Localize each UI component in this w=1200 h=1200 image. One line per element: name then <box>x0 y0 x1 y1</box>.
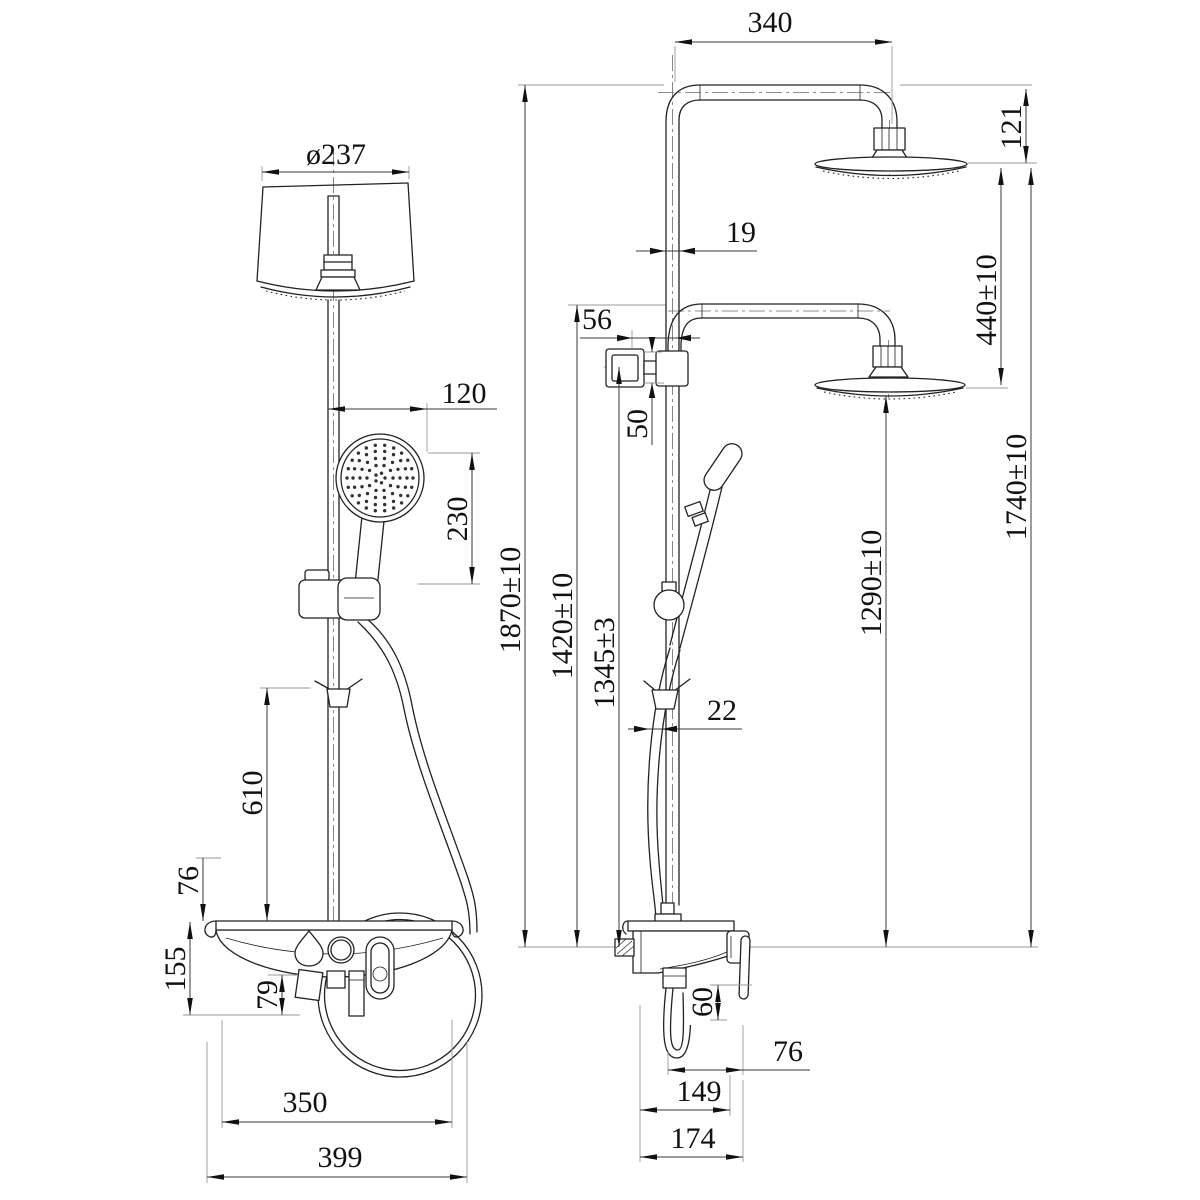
dim-under-shelf-height: 79 <box>251 975 298 1015</box>
dim-shelf-height-label: 155 <box>159 947 192 992</box>
front-shelf <box>205 921 463 1016</box>
dim-diverter-height-label: 50 <box>621 409 654 439</box>
front-hose-outlet <box>295 969 323 1000</box>
front-view <box>205 150 482 1077</box>
side-view <box>518 55 1038 1058</box>
side-lower-arm <box>668 304 965 399</box>
dim-pipe-diameter: 19 <box>636 216 757 254</box>
side-lower-shower-head <box>815 378 965 392</box>
dim-lower-arm-height: 1420±10 <box>546 305 579 947</box>
dim-hook-height-label: 610 <box>236 771 269 816</box>
front-mixer-lever <box>366 937 394 999</box>
side-hook <box>644 679 690 709</box>
dim-hand-shower-length-label: 230 <box>441 497 474 542</box>
dim-arm-reach: 340 <box>675 6 892 124</box>
side-diverter-valve <box>606 349 688 387</box>
dim-shelf-overall-width-label: 399 <box>318 1141 363 1174</box>
dim-body-depth-label: 149 <box>677 1075 722 1108</box>
side-mixer <box>615 903 750 1058</box>
side-holder-knob <box>654 590 684 620</box>
shower-technical-drawing: ø237 120 230 610 76 <box>0 0 1200 1200</box>
dim-head-spacing-label: 440±10 <box>970 254 1003 345</box>
dim-slide-bar-diameter-label: 22 <box>707 694 737 727</box>
dim-lower-head-height: 1290±10 <box>855 396 888 947</box>
side-hand-shower <box>654 440 746 648</box>
dim-diverter-center-height: 1345±3 <box>588 367 621 947</box>
dim-hose-to-lever-label: 76 <box>773 1035 803 1068</box>
front-knob-round <box>328 937 354 963</box>
dim-lever-length-label: 60 <box>686 987 719 1017</box>
dim-shelf-inner-width-label: 350 <box>283 1086 328 1119</box>
side-hose-connector <box>663 968 686 988</box>
dimensions: ø237 120 230 610 76 <box>159 6 1033 1183</box>
dim-hand-shower-length: 230 <box>418 453 480 584</box>
dim-head-drop: 121 <box>995 89 1028 163</box>
dim-upper-head-height: 1740±10 <box>1000 168 1033 947</box>
side-upper-shower-head <box>815 157 967 171</box>
dim-slide-bar-diameter: 22 <box>628 694 742 732</box>
dim-shelf-rim-height-label: 76 <box>172 866 205 896</box>
dim-head-drop-label: 121 <box>995 105 1028 150</box>
dim-lower-arm-height-label: 1420±10 <box>546 573 579 679</box>
front-diverter-pull <box>349 971 364 1016</box>
side-mixer-lever <box>739 936 750 999</box>
dim-overall-height-label: 1870±10 <box>494 547 527 653</box>
dim-shelf-rim-height: 76 <box>172 858 221 921</box>
dim-head-spacing: 440±10 <box>970 168 1003 385</box>
dim-hand-shower-offset-label: 120 <box>442 377 487 410</box>
dim-hook-height: 610 <box>236 688 310 921</box>
dim-overall-depth-label: 174 <box>671 1122 716 1155</box>
front-hose <box>318 618 482 1077</box>
drawing-canvas: ø237 120 230 610 76 <box>0 0 1200 1200</box>
dim-lower-head-height-label: 1290±10 <box>855 530 888 636</box>
dim-pipe-diameter-label: 19 <box>726 216 756 249</box>
dim-arm-reach-label: 340 <box>748 6 793 39</box>
dim-upper-head-height-label: 1740±10 <box>1000 434 1033 540</box>
side-upper-arm <box>666 85 967 179</box>
front-overhead-shower <box>257 183 414 300</box>
front-hand-shower <box>336 434 424 589</box>
dim-head-diameter-label: ø237 <box>306 138 366 171</box>
dim-diverter-center-height-label: 1345±3 <box>588 617 621 708</box>
dim-shelf-overall-width: 399 <box>207 1042 467 1183</box>
dim-overall-height: 1870±10 <box>494 85 527 947</box>
dim-hand-shower-offset: 120 <box>328 377 497 452</box>
dim-head-diameter: ø237 <box>262 138 409 181</box>
dim-under-shelf-height-label: 79 <box>251 980 284 1010</box>
dim-diverter-offset-label: 56 <box>582 303 612 336</box>
